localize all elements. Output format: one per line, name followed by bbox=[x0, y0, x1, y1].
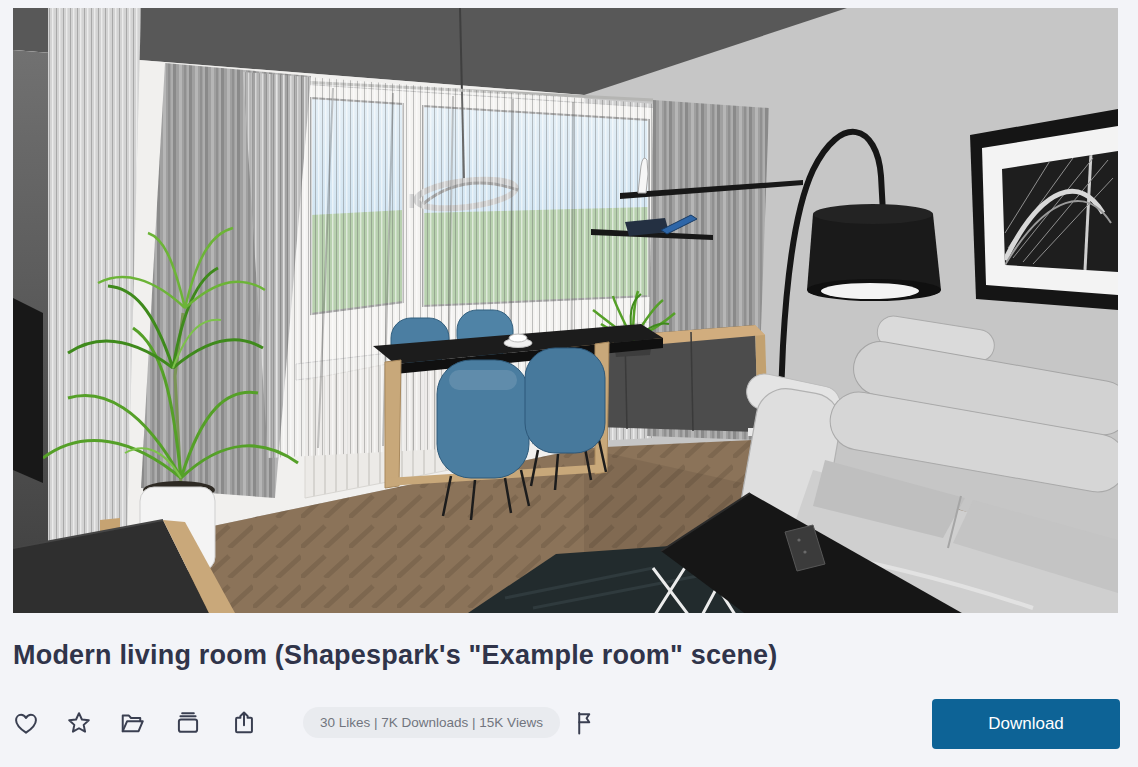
add-to-folder-button[interactable] bbox=[119, 708, 149, 738]
favorite-button[interactable] bbox=[65, 708, 95, 738]
heart-icon bbox=[12, 709, 40, 737]
archive-icon bbox=[174, 709, 202, 737]
living-room-render bbox=[13, 8, 1118, 613]
download-button[interactable]: Download bbox=[932, 699, 1120, 749]
tv-screen bbox=[13, 298, 43, 483]
share-icon bbox=[230, 709, 258, 737]
picture-frame bbox=[970, 109, 1118, 310]
model-preview-image[interactable] bbox=[13, 8, 1118, 613]
flag-icon bbox=[572, 709, 600, 737]
lamp-shade bbox=[807, 214, 941, 290]
share-button[interactable] bbox=[230, 708, 260, 738]
action-row: 30 Likes | 7K Downloads | 15K Views Down… bbox=[0, 694, 1138, 754]
table-leg bbox=[385, 360, 401, 488]
stats-badge: 30 Likes | 7K Downloads | 15K Views bbox=[303, 707, 560, 738]
coffee-cup bbox=[509, 334, 527, 342]
star-icon bbox=[65, 709, 93, 737]
page-title: Modern living room (Shapespark's "Exampl… bbox=[13, 640, 778, 671]
folder-icon bbox=[119, 709, 147, 737]
like-button[interactable] bbox=[12, 708, 42, 738]
collection-button[interactable] bbox=[174, 708, 204, 738]
report-button[interactable] bbox=[572, 708, 602, 738]
